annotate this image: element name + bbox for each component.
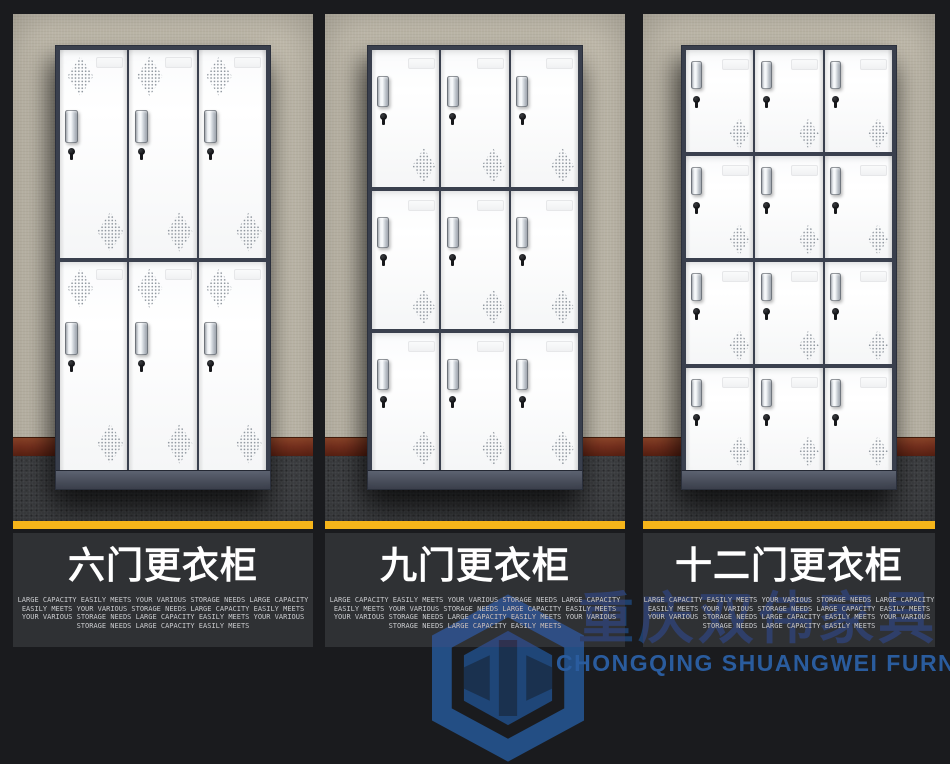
diamond-vent-bottom-icon bbox=[729, 118, 749, 149]
card-slot bbox=[860, 59, 887, 70]
diamond-vent-bottom-icon bbox=[551, 148, 574, 183]
keyhole-icon bbox=[519, 113, 526, 120]
panel-description: LARGE CAPACITY EASILY MEETS YOUR VARIOUS… bbox=[13, 596, 313, 630]
locker-doors bbox=[681, 45, 897, 470]
locker-door bbox=[511, 333, 578, 470]
diamond-vent-bottom-icon bbox=[97, 212, 123, 252]
diamond-vent-bottom-icon bbox=[482, 290, 505, 325]
locker-cabinet-twelve-door bbox=[681, 45, 897, 490]
product-panel-six-door: 六门更衣柜 LARGE CAPACITY EASILY MEETS YOUR V… bbox=[13, 14, 313, 647]
diamond-vent-bottom-icon bbox=[799, 224, 819, 255]
locker-door bbox=[686, 50, 753, 152]
product-panel-twelve-door: 十二门更衣柜 LARGE CAPACITY EASILY MEETS YOUR … bbox=[643, 14, 935, 647]
card-slot bbox=[546, 58, 573, 69]
locker-base bbox=[681, 470, 897, 490]
door-handle bbox=[516, 217, 528, 248]
locker-door bbox=[511, 50, 578, 187]
diamond-vent-bottom-icon bbox=[167, 212, 193, 252]
door-handle bbox=[761, 379, 772, 407]
locker-door bbox=[686, 156, 753, 258]
door-handle bbox=[830, 273, 841, 301]
card-slot bbox=[477, 341, 504, 352]
description-line: STORAGE NEEDS LARGE CAPACITY EASILY MEET… bbox=[325, 622, 625, 631]
diamond-vent-top-icon bbox=[137, 268, 163, 308]
keyhole-icon bbox=[832, 414, 839, 421]
diamond-vent-bottom-icon bbox=[868, 118, 888, 149]
product-photo-six-door bbox=[13, 14, 313, 521]
card-slot bbox=[860, 271, 887, 282]
door-handle bbox=[447, 217, 459, 248]
keyhole-icon bbox=[380, 113, 387, 120]
keyhole-icon bbox=[449, 396, 456, 403]
card-slot bbox=[791, 271, 818, 282]
keyhole-icon bbox=[68, 360, 75, 367]
diamond-vent-top-icon bbox=[206, 268, 232, 308]
card-slot bbox=[96, 269, 123, 280]
door-handle bbox=[691, 167, 702, 195]
door-handle bbox=[761, 61, 772, 89]
locker-doors bbox=[55, 45, 271, 470]
locker-cabinet-six-door bbox=[55, 45, 271, 490]
door-handle bbox=[65, 110, 78, 143]
card-slot bbox=[722, 271, 749, 282]
card-slot bbox=[860, 377, 887, 388]
diamond-vent-bottom-icon bbox=[412, 290, 435, 325]
door-handle bbox=[691, 61, 702, 89]
panel-description: LARGE CAPACITY EASILY MEETS YOUR VARIOUS… bbox=[325, 596, 625, 630]
card-slot bbox=[791, 59, 818, 70]
locker-door bbox=[825, 262, 892, 364]
locker-door bbox=[129, 262, 196, 470]
caption-panel: 十二门更衣柜 LARGE CAPACITY EASILY MEETS YOUR … bbox=[643, 533, 935, 647]
diamond-vent-bottom-icon bbox=[729, 224, 749, 255]
keyhole-icon bbox=[519, 396, 526, 403]
description-line: EASILY MEETS YOUR VARIOUS STORAGE NEEDS … bbox=[643, 605, 935, 614]
diamond-vent-bottom-icon bbox=[799, 436, 819, 467]
locker-door bbox=[686, 368, 753, 470]
keyhole-icon bbox=[693, 96, 700, 103]
locker-base bbox=[55, 470, 271, 490]
diamond-vent-bottom-icon bbox=[868, 436, 888, 467]
locker-door bbox=[441, 333, 508, 470]
locker-door bbox=[372, 333, 439, 470]
door-handle bbox=[204, 110, 217, 143]
locker-door bbox=[511, 191, 578, 328]
diamond-vent-bottom-icon bbox=[551, 431, 574, 466]
card-slot bbox=[165, 269, 192, 280]
card-slot bbox=[546, 341, 573, 352]
keyhole-icon bbox=[68, 148, 75, 155]
door-handle bbox=[516, 76, 528, 107]
keyhole-icon bbox=[763, 202, 770, 209]
diamond-vent-bottom-icon bbox=[167, 424, 193, 464]
card-slot bbox=[722, 59, 749, 70]
locker-door bbox=[825, 156, 892, 258]
diamond-vent-bottom-icon bbox=[799, 330, 819, 361]
description-line: STORAGE NEEDS LARGE CAPACITY EASILY MEET… bbox=[643, 622, 935, 631]
door-handle bbox=[377, 76, 389, 107]
yellow-stripe bbox=[13, 521, 313, 529]
keyhole-icon bbox=[380, 254, 387, 261]
keyhole-icon bbox=[380, 396, 387, 403]
card-slot bbox=[860, 165, 887, 176]
promo-banner: { "page": { "background": "#1a1b1e" }, "… bbox=[0, 0, 950, 687]
caption-panel: 六门更衣柜 LARGE CAPACITY EASILY MEETS YOUR V… bbox=[13, 533, 313, 647]
description-line: YOUR VARIOUS STORAGE NEEDS LARGE CAPACIT… bbox=[13, 613, 313, 622]
panel-title: 十二门更衣柜 bbox=[643, 544, 935, 588]
keyhole-icon bbox=[207, 360, 214, 367]
card-slot bbox=[791, 165, 818, 176]
door-handle bbox=[447, 76, 459, 107]
locker-door bbox=[755, 156, 822, 258]
keyhole-icon bbox=[519, 254, 526, 261]
description-line: EASILY MEETS YOUR VARIOUS STORAGE NEEDS … bbox=[13, 605, 313, 614]
keyhole-icon bbox=[832, 202, 839, 209]
description-line: STORAGE NEEDS LARGE CAPACITY EASILY MEET… bbox=[13, 622, 313, 631]
locker-door bbox=[686, 262, 753, 364]
keyhole-icon bbox=[693, 414, 700, 421]
diamond-vent-bottom-icon bbox=[412, 148, 435, 183]
card-slot bbox=[408, 341, 435, 352]
card-slot bbox=[546, 200, 573, 211]
diamond-vent-bottom-icon bbox=[799, 118, 819, 149]
locker-door bbox=[825, 50, 892, 152]
keyhole-icon bbox=[763, 414, 770, 421]
door-handle bbox=[691, 273, 702, 301]
door-handle bbox=[377, 359, 389, 390]
description-line: YOUR VARIOUS STORAGE NEEDS LARGE CAPACIT… bbox=[643, 613, 935, 622]
diamond-vent-bottom-icon bbox=[868, 224, 888, 255]
locker-door bbox=[372, 50, 439, 187]
locker-doors bbox=[367, 45, 583, 470]
description-line: LARGE CAPACITY EASILY MEETS YOUR VARIOUS… bbox=[325, 596, 625, 605]
door-handle bbox=[830, 379, 841, 407]
card-slot bbox=[408, 200, 435, 211]
locker-door bbox=[129, 50, 196, 258]
card-slot bbox=[96, 57, 123, 68]
description-line: EASILY MEETS YOUR VARIOUS STORAGE NEEDS … bbox=[325, 605, 625, 614]
diamond-vent-bottom-icon bbox=[97, 424, 123, 464]
card-slot bbox=[165, 57, 192, 68]
diamond-vent-bottom-icon bbox=[412, 431, 435, 466]
description-line: YOUR VARIOUS STORAGE NEEDS LARGE CAPACIT… bbox=[325, 613, 625, 622]
keyhole-icon bbox=[138, 360, 145, 367]
keyhole-icon bbox=[832, 96, 839, 103]
keyhole-icon bbox=[763, 308, 770, 315]
description-line: LARGE CAPACITY EASILY MEETS YOUR VARIOUS… bbox=[643, 596, 935, 605]
yellow-stripe bbox=[643, 521, 935, 529]
door-handle bbox=[830, 167, 841, 195]
card-slot bbox=[234, 57, 261, 68]
diamond-vent-top-icon bbox=[206, 56, 232, 96]
card-slot bbox=[722, 377, 749, 388]
locker-door bbox=[825, 368, 892, 470]
locker-cabinet-nine-door bbox=[367, 45, 583, 490]
card-slot bbox=[722, 165, 749, 176]
keyhole-icon bbox=[138, 148, 145, 155]
diamond-vent-bottom-icon bbox=[482, 148, 505, 183]
locker-door bbox=[755, 262, 822, 364]
door-handle bbox=[135, 322, 148, 355]
panel-title: 六门更衣柜 bbox=[13, 544, 313, 588]
locker-door bbox=[60, 262, 127, 470]
panel-description: LARGE CAPACITY EASILY MEETS YOUR VARIOUS… bbox=[643, 596, 935, 630]
panel-title: 九门更衣柜 bbox=[325, 544, 625, 588]
diamond-vent-bottom-icon bbox=[236, 424, 262, 464]
locker-door bbox=[755, 50, 822, 152]
keyhole-icon bbox=[693, 308, 700, 315]
door-handle bbox=[377, 217, 389, 248]
product-panel-nine-door: 九门更衣柜 LARGE CAPACITY EASILY MEETS YOUR V… bbox=[325, 14, 625, 647]
diamond-vent-bottom-icon bbox=[729, 330, 749, 361]
card-slot bbox=[791, 377, 818, 388]
door-handle bbox=[761, 167, 772, 195]
door-handle bbox=[447, 359, 459, 390]
card-slot bbox=[408, 58, 435, 69]
locker-base bbox=[367, 470, 583, 490]
locker-door bbox=[441, 50, 508, 187]
keyhole-icon bbox=[693, 202, 700, 209]
door-handle bbox=[691, 379, 702, 407]
caption-panel: 九门更衣柜 LARGE CAPACITY EASILY MEETS YOUR V… bbox=[325, 533, 625, 647]
locker-door bbox=[372, 191, 439, 328]
locker-door bbox=[199, 262, 266, 470]
brand-name-english: CHONGQING SHUANGWEI FURNITURE bbox=[556, 650, 950, 677]
keyhole-icon bbox=[449, 113, 456, 120]
description-line: LARGE CAPACITY EASILY MEETS YOUR VARIOUS… bbox=[13, 596, 313, 605]
keyhole-icon bbox=[207, 148, 214, 155]
product-photo-twelve-door bbox=[643, 14, 935, 521]
yellow-stripe bbox=[325, 521, 625, 529]
diamond-vent-top-icon bbox=[67, 56, 93, 96]
door-handle bbox=[204, 322, 217, 355]
locker-door bbox=[755, 368, 822, 470]
diamond-vent-top-icon bbox=[137, 56, 163, 96]
diamond-vent-bottom-icon bbox=[482, 431, 505, 466]
door-handle bbox=[761, 273, 772, 301]
diamond-vent-bottom-icon bbox=[551, 290, 574, 325]
diamond-vent-bottom-icon bbox=[868, 330, 888, 361]
card-slot bbox=[234, 269, 261, 280]
diamond-vent-bottom-icon bbox=[729, 436, 749, 467]
locker-door bbox=[60, 50, 127, 258]
locker-door bbox=[441, 191, 508, 328]
locker-door bbox=[199, 50, 266, 258]
door-handle bbox=[830, 61, 841, 89]
diamond-vent-top-icon bbox=[67, 268, 93, 308]
keyhole-icon bbox=[449, 254, 456, 261]
card-slot bbox=[477, 58, 504, 69]
card-slot bbox=[477, 200, 504, 211]
keyhole-icon bbox=[763, 96, 770, 103]
door-handle bbox=[135, 110, 148, 143]
product-photo-nine-door bbox=[325, 14, 625, 521]
door-handle bbox=[65, 322, 78, 355]
keyhole-icon bbox=[832, 308, 839, 315]
door-handle bbox=[516, 359, 528, 390]
diamond-vent-bottom-icon bbox=[236, 212, 262, 252]
